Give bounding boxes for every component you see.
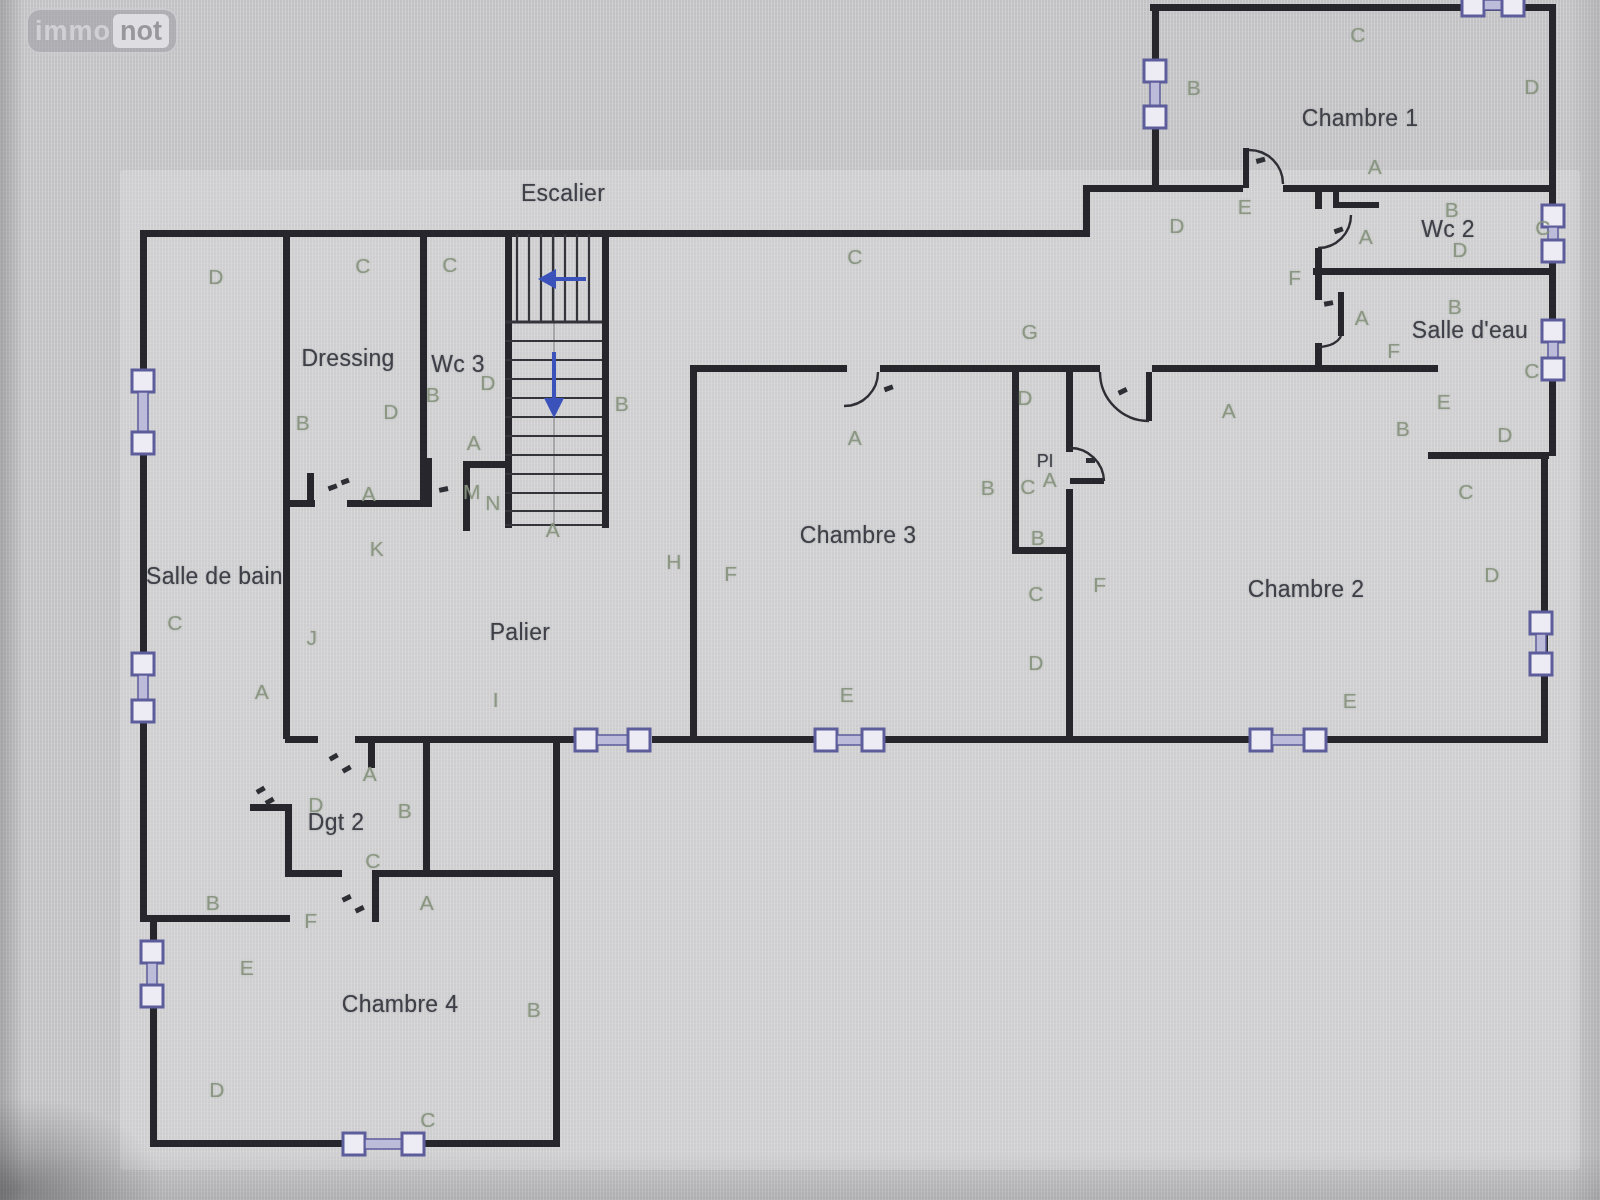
- wall-label: F: [304, 909, 317, 933]
- wall-label: A: [546, 518, 561, 542]
- wall-label: C: [442, 253, 458, 277]
- wall-label: D: [1028, 651, 1044, 675]
- wall-label: A: [1359, 225, 1374, 249]
- wall-label: F: [1387, 339, 1400, 363]
- labels-layer: EscalierChambre 1Wc 2Salle d'eauDressing…: [0, 0, 1600, 1200]
- watermark-logo: immo not: [26, 8, 178, 54]
- wall-label: K: [370, 537, 385, 561]
- wall-label: N: [485, 491, 501, 515]
- room-label-chambre-3: Chambre 3: [800, 522, 916, 549]
- room-label-palier: Palier: [490, 619, 551, 646]
- wall-label: A: [1355, 306, 1370, 330]
- wall-label: E: [1343, 689, 1358, 713]
- wall-label: D: [1524, 75, 1540, 99]
- room-label-chambre-2: Chambre 2: [1248, 576, 1364, 603]
- wall-label: B: [398, 799, 413, 823]
- wall-label: D: [1497, 423, 1513, 447]
- wall-label: J: [307, 626, 318, 650]
- wall-label: D: [1452, 238, 1468, 262]
- wall-label: D: [1484, 563, 1500, 587]
- wall-label: A: [1043, 468, 1058, 492]
- room-label-salle-de-bain: Salle de bain: [146, 563, 286, 590]
- wall-label: H: [666, 550, 682, 574]
- wall-label: B: [1448, 295, 1463, 319]
- wall-label: I: [493, 688, 499, 712]
- wall-label: B: [1396, 417, 1411, 441]
- wall-label: B: [1187, 76, 1202, 100]
- wall-label: A: [1222, 399, 1237, 423]
- wall-label: B: [527, 998, 542, 1022]
- wall-label: B: [296, 411, 311, 435]
- wall-label: D: [308, 793, 324, 817]
- screenshot-stage: EscalierChambre 1Wc 2Salle d'eauDressing…: [0, 0, 1600, 1200]
- wall-label: E: [1437, 390, 1452, 414]
- watermark-immo-text: immo: [35, 16, 111, 47]
- wall-label: C: [355, 254, 371, 278]
- wall-label: D: [208, 265, 224, 289]
- room-label-dressing: Dressing: [301, 345, 394, 372]
- wall-label: A: [362, 482, 377, 506]
- wall-label: F: [1288, 266, 1301, 290]
- wall-label: D: [383, 400, 399, 424]
- wall-label: A: [420, 891, 435, 915]
- wall-label: C: [167, 611, 183, 635]
- room-label-chambre-4: Chambre 4: [342, 991, 458, 1018]
- wall-label: M: [463, 480, 481, 504]
- wall-label: A: [848, 426, 863, 450]
- wall-label: C: [1350, 23, 1366, 47]
- room-label-chambre-1: Chambre 1: [1302, 105, 1418, 132]
- wall-label: C: [365, 849, 381, 873]
- wall-label: B: [1445, 198, 1460, 222]
- wall-label: F: [724, 562, 737, 586]
- wall-label: A: [1368, 155, 1383, 179]
- wall-label: E: [1238, 195, 1253, 219]
- wall-label: B: [426, 383, 441, 407]
- room-label-escalier: Escalier: [521, 180, 605, 207]
- wall-label: C: [847, 245, 863, 269]
- wall-label: B: [206, 891, 221, 915]
- wall-label: C: [1028, 582, 1044, 606]
- wall-label: C: [1458, 480, 1474, 504]
- watermark-not-text: not: [113, 14, 169, 48]
- wall-label: D: [1017, 386, 1033, 410]
- wall-label: C: [1020, 475, 1036, 499]
- wall-label: A: [467, 431, 482, 455]
- wall-label: F: [1093, 573, 1106, 597]
- wall-label: E: [840, 683, 855, 707]
- room-label-salle-d-eau: Salle d'eau: [1412, 317, 1528, 344]
- wall-label: D: [1169, 214, 1185, 238]
- wall-label: C: [1524, 359, 1540, 383]
- wall-label: C: [420, 1108, 436, 1132]
- wall-label: E: [240, 956, 255, 980]
- wall-label: B: [981, 476, 996, 500]
- wall-label: C: [1535, 216, 1551, 240]
- wall-label: D: [480, 371, 496, 395]
- room-label-wc-3: Wc 3: [431, 351, 485, 378]
- wall-label: D: [209, 1078, 225, 1102]
- wall-label: B: [615, 392, 630, 416]
- wall-label: A: [255, 680, 270, 704]
- wall-label: A: [363, 762, 378, 786]
- wall-label: G: [1022, 320, 1039, 344]
- wall-label: B: [1031, 526, 1046, 550]
